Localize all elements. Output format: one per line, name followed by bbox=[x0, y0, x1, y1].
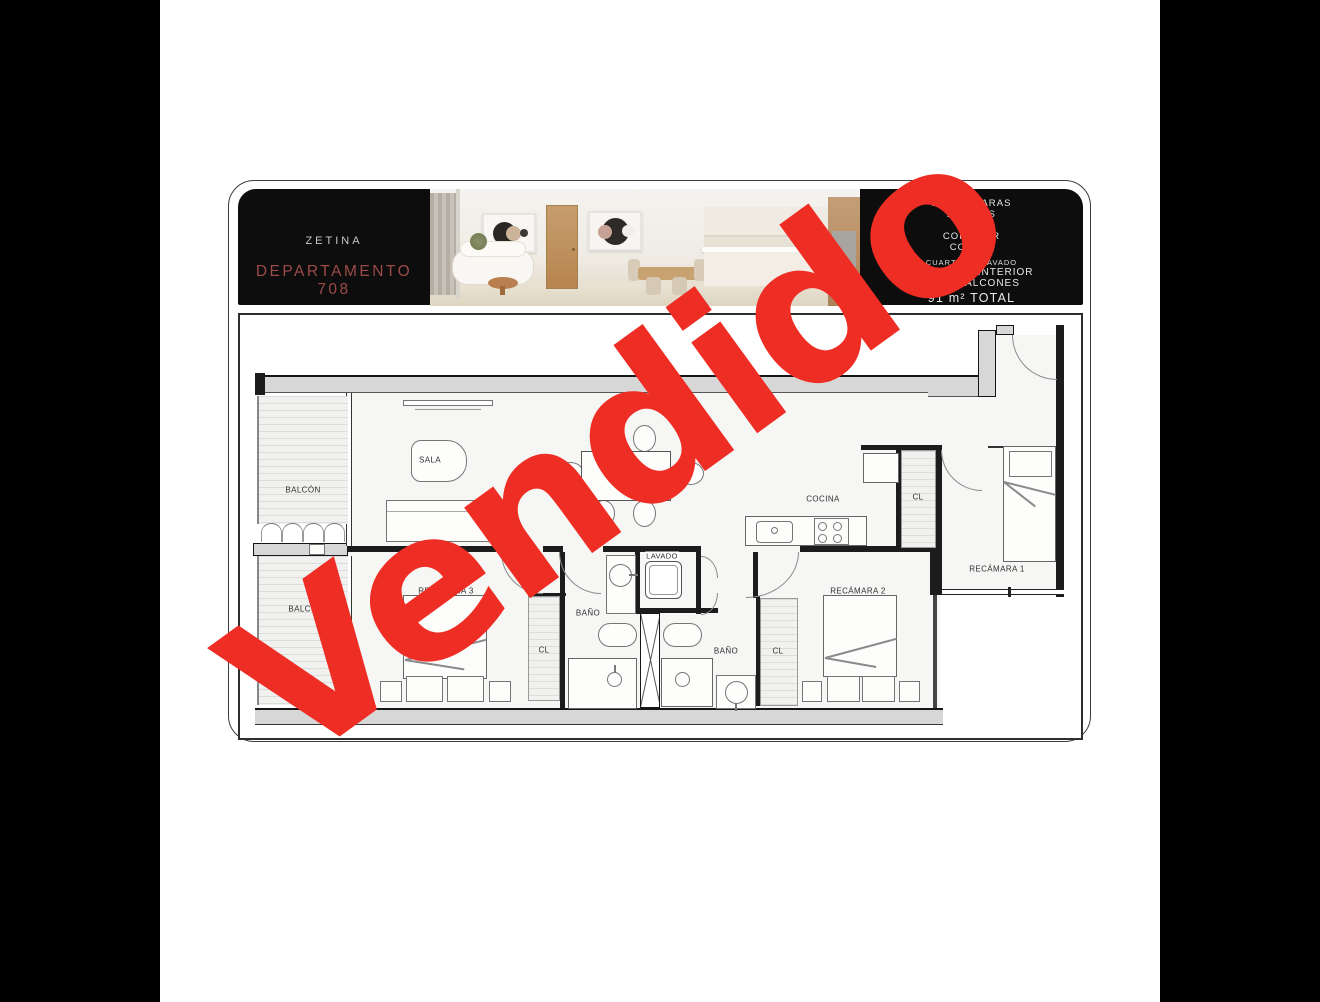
page: ZETINA DEPARTAMENTO 708 bbox=[0, 0, 1320, 1002]
burner bbox=[818, 522, 827, 531]
room-label-closet-recamara2: CL bbox=[772, 647, 783, 656]
bath2-toilet bbox=[663, 623, 702, 647]
kitchen-faucet bbox=[771, 527, 778, 534]
unit-title-line1: DEPARTAMENTO bbox=[238, 263, 430, 281]
bath2-shower-head bbox=[675, 672, 690, 687]
photo-plant bbox=[470, 233, 487, 250]
unit-title: DEPARTAMENTO 708 bbox=[238, 263, 430, 299]
photo-curtain bbox=[430, 193, 456, 295]
pillow bbox=[827, 676, 860, 702]
header-title-panel: ZETINA DEPARTAMENTO 708 bbox=[238, 189, 430, 305]
window-tick bbox=[1008, 587, 1011, 597]
unit-title-line2: 708 bbox=[238, 281, 430, 299]
art-shape bbox=[622, 225, 634, 237]
art-shape bbox=[598, 225, 612, 239]
bath2-basin bbox=[725, 681, 748, 704]
door-knob bbox=[572, 248, 575, 251]
bath1-shower-stem bbox=[614, 665, 616, 673]
brand-name: ZETINA bbox=[238, 235, 430, 247]
photo-coffee-table-leg bbox=[500, 286, 505, 295]
window-recamara1 bbox=[933, 589, 1064, 595]
pillow bbox=[1009, 451, 1052, 477]
room-label-cocina: COCINA bbox=[806, 495, 840, 504]
art-shape bbox=[506, 226, 521, 241]
room-label-recamara-2: RECÁMARA 2 bbox=[830, 587, 886, 596]
pillow bbox=[862, 676, 895, 702]
nightstand bbox=[802, 681, 822, 702]
photo-door bbox=[546, 205, 578, 289]
kitchen-cabinet bbox=[863, 453, 899, 483]
bath1-shower-head bbox=[607, 672, 622, 687]
art-shape bbox=[520, 229, 528, 237]
room-label-bano-2: BAÑO bbox=[714, 647, 738, 656]
left-black-bar bbox=[0, 0, 160, 1002]
wall-stub-left bbox=[255, 373, 265, 395]
room-label-recamara-1: RECÁMARA 1 bbox=[969, 565, 1025, 574]
burner bbox=[818, 534, 827, 543]
room-label-closet-cocina: CL bbox=[912, 493, 923, 502]
bath2-tap bbox=[735, 703, 737, 711]
nightstand bbox=[899, 681, 920, 702]
photo-artwork-right bbox=[588, 211, 642, 251]
burner bbox=[833, 522, 842, 531]
burner bbox=[833, 534, 842, 543]
bath1-shower bbox=[568, 658, 637, 709]
wall-recamara2-right-thin bbox=[933, 595, 937, 708]
right-black-bar bbox=[1160, 0, 1320, 1002]
wall-recamara2-right bbox=[930, 548, 939, 595]
shaft bbox=[640, 613, 660, 708]
wall-right bbox=[1056, 325, 1064, 597]
